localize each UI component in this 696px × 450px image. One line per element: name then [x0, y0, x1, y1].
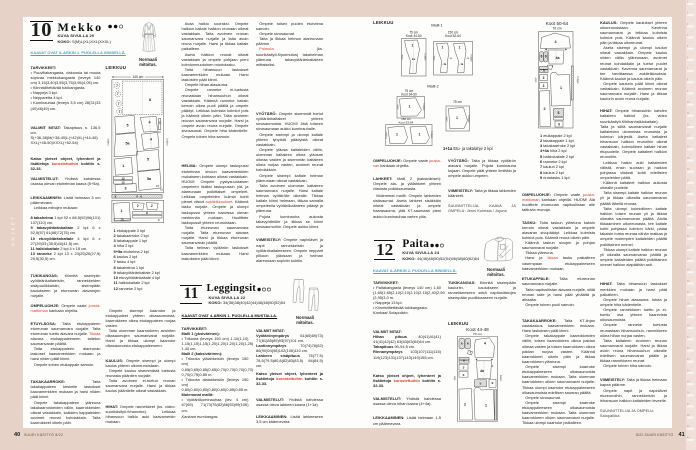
- svg-text:hulpio: hulpio: [384, 131, 388, 138]
- svg-text:5: 5: [480, 382, 482, 386]
- svg-text:5: 5: [558, 111, 560, 115]
- svg-text:hulpio: hulpio: [424, 54, 428, 61]
- svg-text:3: 3: [543, 84, 545, 88]
- svg-text:hulpio: hulpio: [430, 132, 434, 139]
- svg-text:9: 9: [558, 123, 560, 127]
- svg-text:4a: 4a: [556, 56, 561, 60]
- svg-text:hulpio: hulpio: [576, 77, 580, 84]
- svg-text:1: 1: [120, 209, 122, 213]
- svg-text:5: 5: [147, 158, 149, 162]
- svg-text:34: 34: [687, 368, 690, 372]
- svg-text:1: 1: [485, 404, 487, 408]
- svg-text:3: 3: [543, 76, 545, 80]
- svg-text:hulpio: hulpio: [499, 375, 502, 382]
- svg-text:28: 28: [687, 301, 690, 305]
- svg-text:4: 4: [150, 138, 152, 142]
- svg-text:5a: 5a: [147, 177, 152, 181]
- svg-text:17: 17: [687, 178, 690, 182]
- svg-text:1: 1: [560, 86, 562, 90]
- svg-text:7: 7: [470, 351, 472, 355]
- svg-text:70 cm: 70 cm: [473, 332, 483, 336]
- svg-text:4a: 4a: [480, 369, 484, 373]
- svg-text:hulpio: hulpio: [106, 138, 110, 146]
- svg-text:43: 43: [467, 58, 470, 60]
- svg-text:1: 1: [456, 116, 458, 120]
- svg-text:36: 36: [687, 391, 690, 395]
- svg-text:10: 10: [687, 100, 690, 104]
- svg-text:27: 27: [687, 290, 690, 294]
- svg-text:7: 7: [116, 92, 118, 96]
- svg-text:taite: taite: [453, 375, 456, 380]
- svg-text:10: 10: [120, 218, 124, 222]
- svg-text:16: 16: [687, 167, 690, 171]
- svg-text:35: 35: [687, 380, 690, 384]
- svg-text:15: 15: [687, 156, 690, 160]
- svg-text:30: 30: [687, 324, 690, 328]
- svg-text:8: 8: [158, 218, 160, 222]
- svg-text:4: 4: [687, 33, 689, 37]
- svg-text:6: 6: [687, 55, 689, 59]
- svg-text:32: 32: [687, 346, 690, 350]
- svg-text:hulpio: hulpio: [470, 55, 474, 62]
- svg-text:6: 6: [541, 55, 543, 59]
- svg-text:2: 2: [150, 204, 152, 208]
- svg-text:21: 21: [687, 223, 690, 227]
- svg-text:18: 18: [156, 184, 159, 188]
- svg-text:Koot 34-50: Koot 34-50: [401, 93, 417, 97]
- svg-text:6: 6: [467, 342, 469, 346]
- svg-text:2: 2: [687, 11, 689, 15]
- svg-text:Koot 34-50: Koot 34-50: [406, 34, 422, 38]
- svg-text:4: 4: [484, 342, 486, 346]
- svg-text:1: 1: [396, 133, 398, 137]
- svg-text:1: 1: [412, 44, 414, 48]
- svg-text:- 1a: - 1a: [442, 62, 447, 66]
- svg-text:6: 6: [461, 342, 463, 346]
- svg-text:2: 2: [544, 107, 546, 111]
- svg-text:6: 6: [545, 55, 547, 59]
- svg-text:3: 3: [687, 22, 689, 26]
- svg-text:1: 1: [409, 105, 411, 109]
- svg-text:40: 40: [687, 435, 690, 439]
- svg-text:23: 23: [687, 245, 690, 249]
- svg-text:7: 7: [118, 110, 120, 114]
- svg-text:8: 8: [687, 78, 689, 82]
- svg-text:Koot 50-64: Koot 50-64: [546, 21, 569, 26]
- svg-text:11: 11: [158, 121, 162, 125]
- svg-text:24: 24: [687, 257, 690, 261]
- svg-text:140 cm: 140 cm: [132, 75, 143, 79]
- svg-text:7: 7: [552, 65, 554, 69]
- svg-text:1: 1: [459, 46, 461, 50]
- svg-text:14: 14: [687, 145, 690, 149]
- svg-text:taite: taite: [445, 116, 449, 121]
- svg-text:7: 7: [116, 84, 118, 88]
- svg-text:Malli 2: Malli 2: [427, 84, 439, 89]
- svg-text:10: 10: [160, 188, 163, 192]
- svg-text:1: 1: [442, 46, 444, 50]
- svg-text:8: 8: [149, 98, 151, 102]
- svg-text:1: 1: [687, 0, 689, 3]
- svg-text:39: 39: [687, 424, 690, 428]
- svg-text:8: 8: [543, 69, 545, 73]
- svg-text:75 cm: 75 cm: [453, 100, 462, 104]
- svg-text:hulpio: hulpio: [422, 104, 426, 111]
- svg-text:5: 5: [687, 44, 689, 48]
- svg-text:Koot 44-48: Koot 44-48: [466, 327, 489, 332]
- svg-text:12: 12: [687, 122, 690, 126]
- svg-text:38: 38: [687, 413, 690, 417]
- svg-text:3: 3: [463, 366, 465, 370]
- svg-text:4: 4: [555, 40, 557, 44]
- svg-text:9: 9: [492, 381, 494, 385]
- svg-text:20: 20: [687, 212, 690, 216]
- svg-text:Koot 52-64: Koot 52-64: [399, 120, 414, 124]
- svg-text:18: 18: [687, 190, 690, 194]
- svg-text:22: 22: [687, 234, 690, 238]
- svg-text:29: 29: [687, 312, 690, 316]
- svg-text:19: 19: [687, 201, 690, 205]
- svg-text:10: 10: [157, 130, 160, 134]
- svg-text:70 cm: 70 cm: [552, 27, 561, 31]
- svg-text:43: 43: [450, 58, 453, 60]
- svg-text:5a: 5a: [125, 142, 130, 146]
- svg-text:hulpio: hulpio: [467, 116, 471, 123]
- svg-text:33: 33: [687, 357, 690, 361]
- svg-text:taite: taite: [432, 55, 436, 60]
- svg-text:Malli 1: Malli 1: [431, 23, 443, 28]
- svg-text:11: 11: [687, 111, 690, 115]
- svg-text:- 1a: - 1a: [459, 62, 464, 66]
- svg-text:5: 5: [126, 124, 128, 128]
- svg-text:7: 7: [687, 67, 689, 71]
- svg-text:9: 9: [687, 89, 689, 93]
- svg-text:1: 1: [419, 133, 421, 137]
- svg-text:Koot 52-64: Koot 52-64: [445, 34, 461, 38]
- svg-text:1a: 1a: [412, 57, 416, 61]
- svg-text:taite: taite: [534, 77, 538, 82]
- svg-text:2: 2: [136, 204, 138, 208]
- svg-text:3: 3: [463, 373, 465, 377]
- svg-text:taite: taite: [396, 104, 400, 109]
- svg-text:2: 2: [492, 364, 494, 368]
- svg-text:2: 2: [464, 403, 466, 407]
- svg-text:26: 26: [687, 279, 690, 283]
- svg-text:25: 25: [687, 268, 690, 272]
- svg-text:7: 7: [117, 102, 119, 106]
- svg-text:13: 13: [687, 134, 690, 138]
- svg-text:37: 37: [687, 402, 690, 406]
- svg-text:31: 31: [687, 335, 690, 339]
- svg-text:8: 8: [463, 359, 465, 363]
- svg-text:4: 4: [148, 121, 150, 125]
- svg-text:3: 3: [124, 187, 126, 191]
- svg-text:taite: taite: [400, 54, 404, 59]
- svg-text:hulpio: hulpio: [165, 138, 169, 146]
- svg-text:1: 1: [122, 164, 124, 168]
